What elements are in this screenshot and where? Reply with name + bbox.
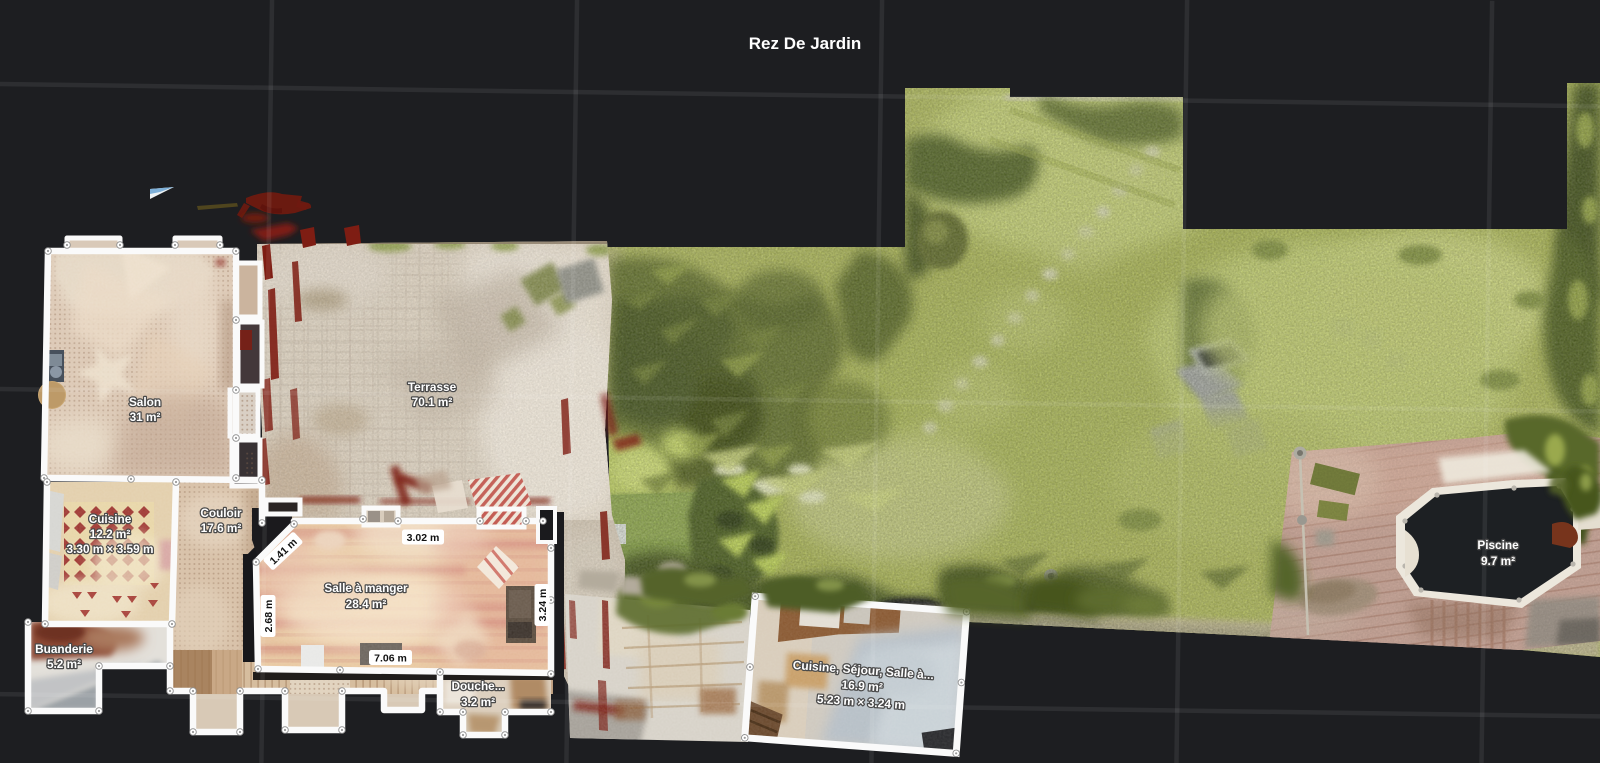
svg-text:3.02 m: 3.02 m — [407, 532, 440, 544]
svg-text:Salon: Salon — [129, 395, 161, 409]
svg-text:28.4 m²: 28.4 m² — [346, 597, 387, 611]
svg-text:3.24 m: 3.24 m — [537, 589, 549, 622]
svg-text:17.6 m²: 17.6 m² — [201, 521, 242, 535]
svg-text:3.30 m × 3.59 m: 3.30 m × 3.59 m — [67, 542, 154, 556]
svg-text:Terrasse: Terrasse — [408, 380, 457, 394]
svg-text:7.06 m: 7.06 m — [374, 653, 407, 665]
svg-text:5.2 m²: 5.2 m² — [47, 657, 81, 671]
svg-text:Couloir: Couloir — [200, 506, 242, 520]
svg-text:12.2 m²: 12.2 m² — [90, 527, 131, 541]
svg-text:Douche...: Douche... — [451, 679, 504, 693]
svg-text:Rez De Jardin: Rez De Jardin — [749, 34, 861, 53]
svg-text:9.7 m²: 9.7 m² — [1481, 554, 1515, 568]
svg-text:31 m²: 31 m² — [130, 410, 161, 424]
svg-text:70.1 m²: 70.1 m² — [412, 395, 453, 409]
svg-text:Buanderie: Buanderie — [35, 642, 93, 656]
svg-text:Salle à manger: Salle à manger — [324, 581, 408, 595]
svg-text:3.2 m²: 3.2 m² — [461, 695, 495, 709]
svg-text:2.68 m: 2.68 m — [263, 600, 275, 633]
svg-text:Cuisine: Cuisine — [89, 512, 132, 526]
svg-text:Piscine: Piscine — [1477, 538, 1519, 552]
